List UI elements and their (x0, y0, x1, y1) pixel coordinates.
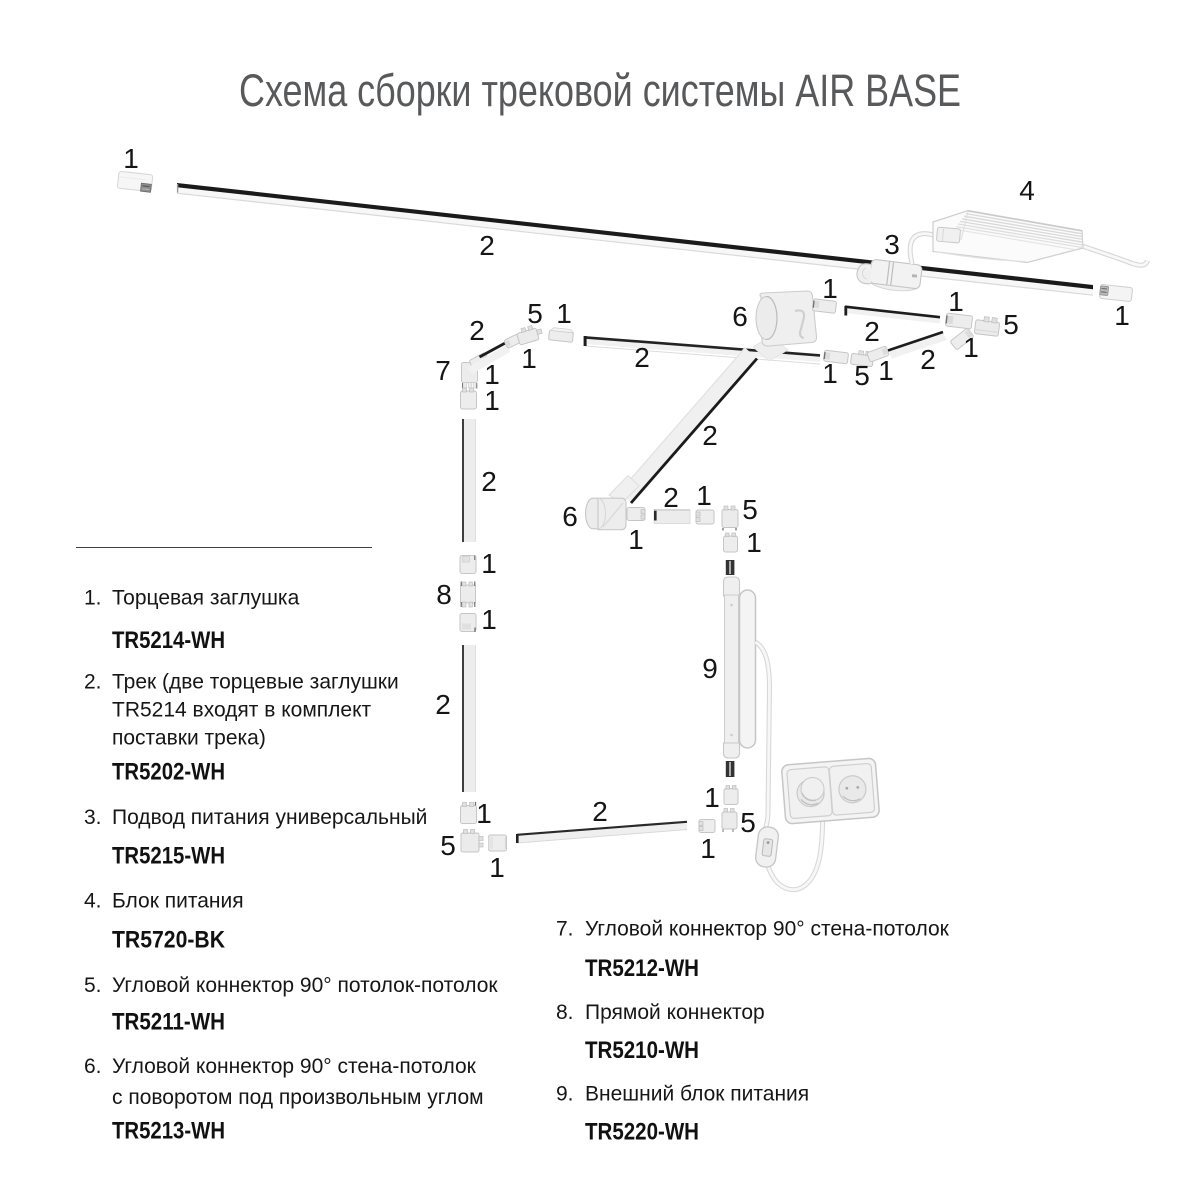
svg-text:6: 6 (562, 501, 578, 532)
svg-text:2: 2 (469, 315, 485, 346)
svg-text:2: 2 (479, 230, 495, 261)
svg-text:поставки трека): поставки трека) (112, 727, 266, 750)
svg-text:1: 1 (822, 273, 838, 304)
svg-text:1: 1 (700, 833, 716, 864)
svg-text:Схема сборки трековой системы: Схема сборки трековой системы AIR BASE (239, 65, 961, 116)
svg-text:1: 1 (481, 604, 497, 635)
svg-text:5: 5 (440, 830, 456, 861)
svg-text:TR5212-WH: TR5212-WH (585, 955, 699, 982)
svg-text:TR5202-WH: TR5202-WH (112, 759, 225, 786)
svg-text:1: 1 (878, 355, 894, 386)
svg-text:1: 1 (476, 798, 492, 829)
svg-text:2: 2 (864, 316, 880, 347)
svg-text:3.: 3. (84, 806, 102, 829)
svg-text:Трек (две торцевые заглушки: Трек (две торцевые заглушки (112, 671, 399, 694)
svg-text:TR5211-WH: TR5211-WH (112, 1009, 225, 1036)
svg-text:TR5213-WH: TR5213-WH (112, 1118, 225, 1145)
svg-text:1: 1 (489, 852, 505, 883)
svg-text:1: 1 (628, 524, 644, 555)
svg-text:Подвод питания универсальный: Подвод питания универсальный (112, 806, 427, 829)
svg-text:Угловой коннектор 90° стена-по: Угловой коннектор 90° стена-потолок (585, 918, 950, 941)
svg-text:1: 1 (948, 286, 964, 317)
svg-text:9.: 9. (556, 1083, 574, 1106)
svg-text:2: 2 (663, 482, 679, 513)
svg-text:2: 2 (592, 796, 608, 827)
svg-text:2: 2 (920, 344, 936, 375)
svg-text:Торцевая заглушка: Торцевая заглушка (112, 587, 300, 610)
svg-text:TR5210-WH: TR5210-WH (585, 1037, 699, 1064)
svg-text:7.: 7. (556, 918, 574, 941)
svg-text:2: 2 (435, 689, 451, 720)
svg-text:5: 5 (742, 494, 758, 525)
svg-text:1: 1 (696, 480, 712, 511)
svg-text:1: 1 (484, 385, 500, 416)
svg-text:TR5720-BK: TR5720-BK (112, 927, 226, 954)
svg-text:1: 1 (746, 527, 762, 558)
svg-text:1.: 1. (84, 587, 102, 610)
svg-text:с поворотом под произвольным у: с поворотом под произвольным углом (112, 1086, 484, 1109)
svg-text:5: 5 (527, 298, 543, 329)
svg-text:8: 8 (436, 579, 452, 610)
svg-text:6.: 6. (84, 1055, 102, 1078)
svg-text:Угловой коннектор 90° стена-по: Угловой коннектор 90° стена-потолок (112, 1055, 477, 1078)
svg-text:1: 1 (1114, 300, 1130, 331)
svg-text:2.: 2. (84, 671, 102, 694)
svg-text:2: 2 (634, 342, 650, 373)
svg-text:2: 2 (481, 466, 497, 497)
svg-text:TR5215-WH: TR5215-WH (112, 843, 225, 870)
svg-text:6: 6 (732, 301, 748, 332)
svg-text:Внешний блок питания: Внешний блок питания (585, 1083, 809, 1106)
svg-text:3: 3 (884, 229, 900, 260)
svg-text:Блок питания: Блок питания (112, 890, 244, 913)
svg-text:7: 7 (435, 355, 451, 386)
svg-text:1: 1 (481, 548, 497, 579)
svg-text:5: 5 (854, 360, 870, 391)
svg-text:5.: 5. (84, 974, 102, 997)
svg-text:1: 1 (822, 358, 838, 389)
svg-text:4.: 4. (84, 890, 102, 913)
svg-text:Угловой коннектор 90° потолок-: Угловой коннектор 90° потолок-потолок (112, 974, 498, 997)
svg-text:1: 1 (963, 332, 979, 363)
svg-text:1: 1 (556, 298, 572, 329)
svg-text:1: 1 (521, 343, 537, 374)
svg-text:Прямой коннектор: Прямой коннектор (585, 1001, 765, 1024)
svg-text:5: 5 (740, 807, 756, 838)
svg-text:TR5220-WH: TR5220-WH (585, 1119, 699, 1146)
svg-text:5: 5 (1003, 309, 1019, 340)
svg-text:1: 1 (123, 143, 139, 174)
svg-text:9: 9 (702, 653, 718, 684)
svg-text:TR5214 входят в комплект: TR5214 входят в комплект (112, 699, 372, 722)
svg-text:1: 1 (704, 782, 720, 813)
svg-text:TR5214-WH: TR5214-WH (112, 627, 225, 654)
svg-text:4: 4 (1019, 175, 1035, 206)
svg-text:8.: 8. (556, 1001, 574, 1024)
svg-text:2: 2 (702, 420, 718, 451)
